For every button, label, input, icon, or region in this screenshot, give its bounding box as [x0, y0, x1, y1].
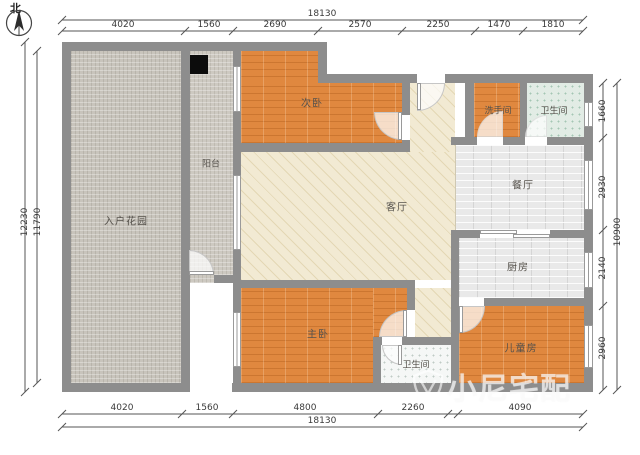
window-balcony-bedroom	[233, 66, 241, 112]
window-master-bedroom	[233, 312, 241, 367]
room-label-kids-room: 儿童房	[505, 340, 538, 355]
dim-bottom-seg-5: 4090	[509, 403, 532, 413]
wall-segment	[232, 383, 593, 392]
dim-right-seg-4: 2960	[598, 337, 608, 360]
wall-segment	[550, 230, 584, 238]
dim-bottom-seg-1: 4020	[111, 403, 134, 413]
room-floor-living	[241, 152, 455, 280]
wall-segment	[373, 337, 382, 345]
window-kids-room	[584, 325, 593, 368]
dim-left-inner: 11790	[33, 208, 43, 237]
window-bathroom-top	[584, 102, 593, 127]
wall-segment	[318, 74, 417, 83]
dim-top-seg-1: 4020	[112, 20, 135, 30]
dim-right-seg-2: 2930	[598, 176, 608, 199]
wall-segment	[373, 345, 381, 383]
room-label-master-bedroom: 主卧	[307, 326, 329, 341]
dim-top-total: 18130	[308, 9, 337, 19]
room-label-kitchen: 厨房	[507, 259, 529, 274]
bathroom-bottom-door-leaf	[398, 345, 402, 365]
wall-segment	[445, 74, 593, 83]
room-label-second-bedroom: 次卧	[301, 95, 323, 110]
wall-segment	[62, 383, 190, 392]
dim-right-seg-1: 1660	[598, 100, 608, 123]
wall-segment	[547, 137, 584, 145]
window-balcony-living	[233, 175, 241, 250]
entry-door-leaf	[417, 83, 421, 110]
dim-right-total: 10900	[613, 218, 623, 247]
wall-segment	[62, 42, 327, 51]
room-label-dining: 餐厅	[512, 177, 534, 192]
dim-top-seg-6: 1470	[488, 20, 511, 30]
dim-bottom-seg-3: 4800	[294, 403, 317, 413]
dim-top-seg-2: 1560	[198, 20, 221, 30]
room-floor-second-bedroom-upper	[241, 51, 318, 84]
room-label-balcony: 阳台	[202, 157, 220, 170]
dim-left-outer: 12230	[20, 208, 30, 237]
second-bedroom-door-leaf	[398, 112, 402, 140]
wall-segment	[465, 83, 474, 145]
master-bedroom-door-leaf	[403, 310, 407, 337]
wall-segment	[451, 306, 459, 383]
wall-segment	[451, 137, 477, 145]
sliding-door-panel-2	[513, 234, 550, 238]
room-floor-hallway	[415, 288, 451, 337]
kids-room-door-leaf	[459, 306, 463, 333]
floor-plan-canvas: 北	[0, 0, 640, 455]
wall-segment	[62, 42, 71, 392]
window-dining	[584, 160, 593, 210]
room-label-washroom: 洗手间	[484, 104, 511, 117]
floor-transition-line	[455, 145, 456, 230]
dim-bottom-seg-2: 1560	[196, 403, 219, 413]
wall-segment	[402, 337, 451, 345]
wall-segment	[503, 137, 525, 145]
dim-top-seg-5: 2250	[427, 20, 450, 30]
balcony-door-leaf	[189, 271, 214, 275]
wall-segment	[181, 275, 189, 283]
structural-column	[190, 55, 208, 74]
wall-segment	[402, 140, 410, 152]
window-kitchen	[584, 252, 593, 288]
dim-bottom-seg-4: 2260	[402, 403, 425, 413]
wall-segment	[484, 298, 584, 306]
room-label-bathroom-bottom: 卫生间	[402, 358, 429, 371]
dim-right-seg-3: 2140	[598, 257, 608, 280]
dim-top-seg-3: 2690	[264, 20, 287, 30]
wall-segment	[233, 280, 415, 288]
sliding-door-panel-1	[480, 230, 517, 234]
dim-top-seg-4: 2570	[349, 20, 372, 30]
dim-top-seg-7: 1810	[542, 20, 565, 30]
room-label-living: 客厅	[386, 199, 408, 214]
room-label-bathroom-top: 卫生间	[540, 104, 567, 117]
wall-segment	[407, 288, 415, 310]
wall-segment	[451, 230, 459, 306]
dim-bottom-total: 18130	[308, 416, 337, 426]
wall-segment	[233, 143, 410, 152]
wall-segment	[402, 83, 410, 115]
wall-segment	[181, 51, 190, 383]
room-label-entry-garden: 入户花园	[104, 213, 148, 228]
